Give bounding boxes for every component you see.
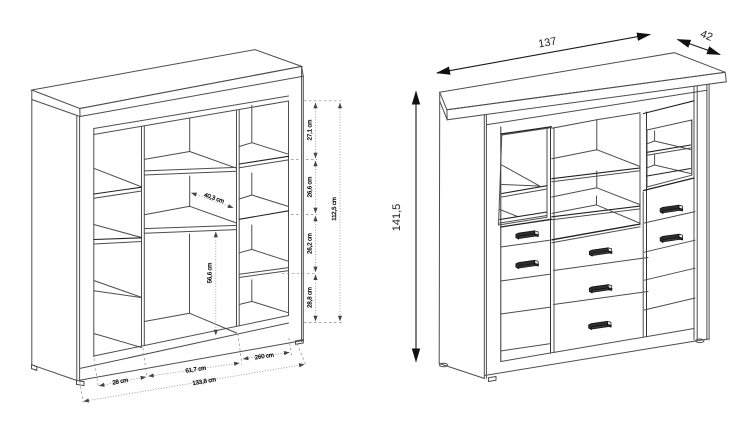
svg-text:27,1 cm: 27,1 cm <box>307 120 314 141</box>
svg-text:56,6 cm: 56,6 cm <box>207 263 214 284</box>
svg-text:112,5 cm: 112,5 cm <box>331 197 338 221</box>
svg-text:137: 137 <box>537 35 557 50</box>
svg-text:260 cm: 260 cm <box>254 352 274 362</box>
svg-text:133,8 cm: 133,8 cm <box>192 376 217 387</box>
svg-text:26,6 cm: 26,6 cm <box>307 177 314 198</box>
svg-text:42: 42 <box>698 28 714 44</box>
svg-text:28,8 cm: 28,8 cm <box>307 287 314 308</box>
svg-text:26,2 cm: 26,2 cm <box>307 233 314 254</box>
svg-text:141,5: 141,5 <box>391 204 403 232</box>
svg-text:61,7 cm: 61,7 cm <box>185 365 207 375</box>
svg-text:40,3 cm: 40,3 cm <box>203 192 225 206</box>
svg-text:28 cm: 28 cm <box>112 377 129 387</box>
